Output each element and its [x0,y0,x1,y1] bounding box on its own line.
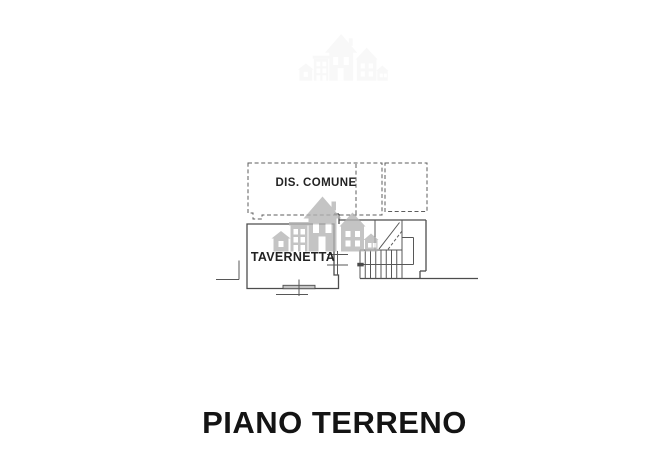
floor-plan-drawing [0,0,650,450]
buildings-watermark-top-faint [298,34,389,81]
room-label-dis-comune: DIS. COMUNE [250,177,382,189]
room-label-tavernetta: TAVERNETTA [248,250,338,264]
plan-title: PIANO TERRENO [0,405,650,441]
floor-plan-page: DIS. COMUNE TAVERNETTA PIANO TERRENO [0,0,650,450]
upper-right-room-outline [385,163,427,212]
stair-wall-tick [357,263,363,267]
